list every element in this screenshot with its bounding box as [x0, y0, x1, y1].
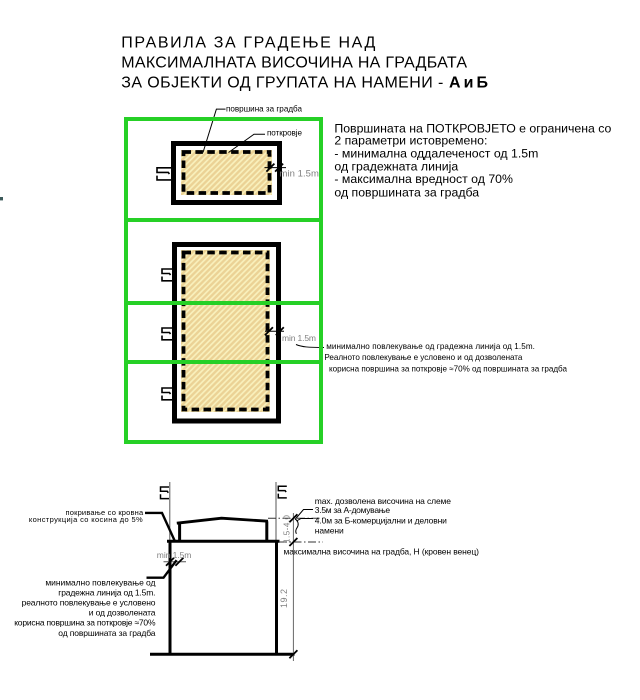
- svg-text:минимално повлекување од граде: минимално повлекување од градежна линија…: [326, 342, 535, 351]
- svg-text:намени: намени: [315, 526, 344, 536]
- svg-text:површина за градба: површина за градба: [226, 104, 302, 113]
- svg-text:корисна површина за поткровје: корисна површина за поткровје ≈70%: [14, 618, 156, 628]
- svg-text:Реалното повлекување е условен: Реалното повлекување е условено и од доз…: [324, 353, 522, 362]
- svg-text:ЗА ОБЈЕКТИ ОД ГРУПАТА НА НАМЕН: ЗА ОБЈЕКТИ ОД ГРУПАТА НА НАМЕНИ -: [121, 75, 443, 92]
- svg-text:максимална височина на градба,: максимална височина на градба, Н (кровен…: [284, 546, 480, 556]
- svg-text:од површината за градба: од површината за градба: [58, 628, 155, 638]
- svg-text:конструкција со косина до 5%: конструкција со косина до 5%: [29, 515, 143, 524]
- svg-text:А и Б: А и Б: [449, 75, 488, 92]
- svg-text:поткровје: поткровје: [267, 129, 302, 138]
- svg-text:1.5-4.0: 1.5-4.0: [283, 514, 292, 543]
- svg-text:реалното повлекување е условен: реалното повлекување е условено: [22, 598, 156, 608]
- svg-text:3.5м за А-домување: 3.5м за А-домување: [315, 505, 391, 515]
- svg-text:и од дозволената: и од дозволената: [89, 608, 156, 618]
- svg-text:min 1.5m: min 1.5m: [282, 333, 316, 343]
- svg-text:- максимална вредност од 70%: - максимална вредност од 70%: [334, 172, 513, 186]
- svg-text:МАКСИМАЛНАТА ВИСОЧИНА НА ГРАДБ: МАКСИМАЛНАТА ВИСОЧИНА НА ГРАДБАТА: [121, 55, 467, 72]
- svg-text:минимално повлекување од: минимално повлекување од: [45, 577, 155, 587]
- svg-text:од површината за градба: од површината за градба: [334, 185, 479, 199]
- svg-text:min 1.5m: min 1.5m: [157, 550, 192, 560]
- svg-text:градежна линија од 1.5m.: градежна линија од 1.5m.: [58, 587, 155, 597]
- svg-text:min 1.5m: min 1.5m: [280, 168, 319, 179]
- svg-text:ПРАВИЛА ЗА ГРАДЕЊЕ НАД: ПРАВИЛА ЗА ГРАДЕЊЕ НАД: [121, 34, 375, 51]
- svg-text:- минимална оддалеченост од 1.: - минимална оддалеченост од 1.5m: [334, 146, 538, 160]
- svg-text:19.2: 19.2: [279, 589, 289, 608]
- svg-text:корисна површина за поткровје: корисна површина за поткровје ≈70% од по…: [329, 365, 567, 374]
- svg-text:4.0м за Б-комерцијални и делов: 4.0м за Б-комерцијални и деловни: [315, 516, 447, 526]
